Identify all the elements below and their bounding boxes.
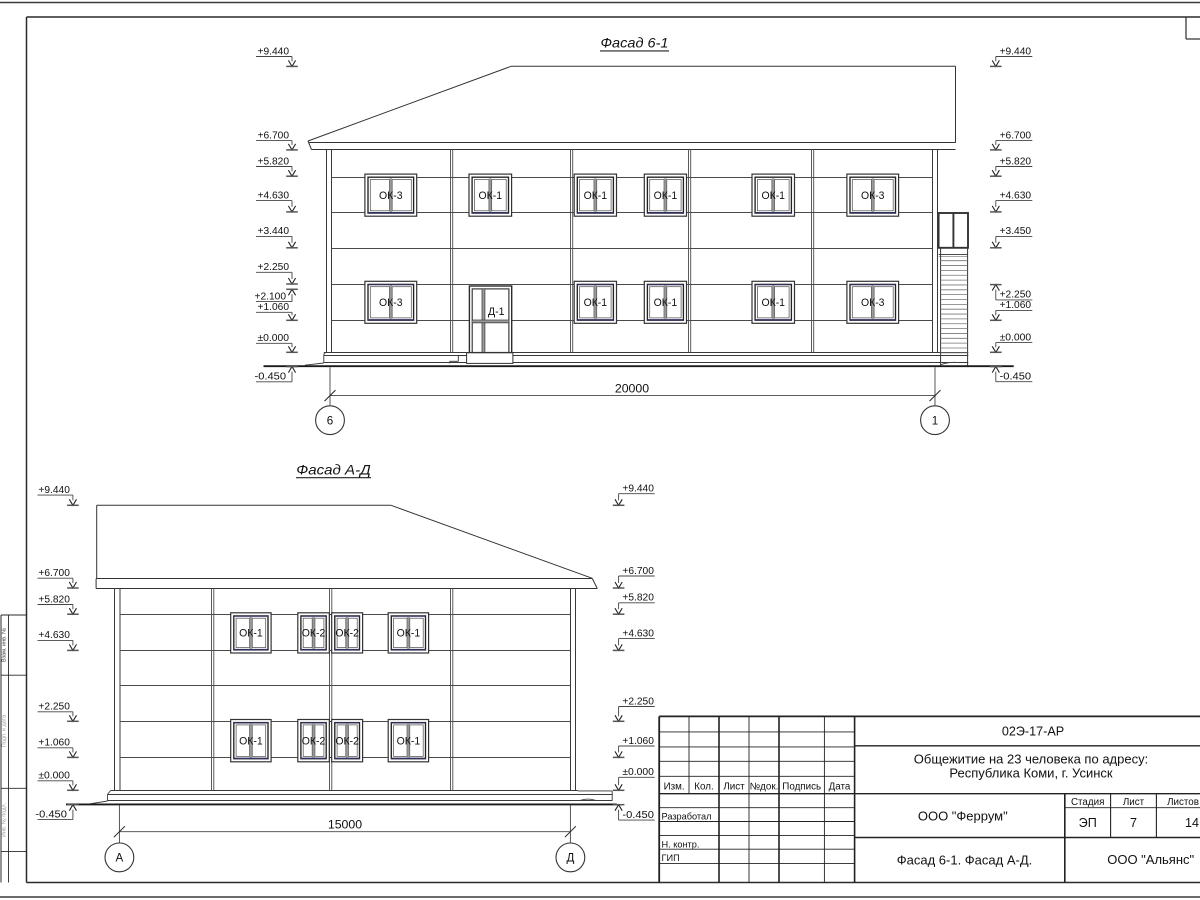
svg-text:+4.630: +4.630 [622,628,654,639]
svg-text:+2.100: +2.100 [255,291,287,302]
svg-text:Листов: Листов [1167,797,1199,808]
svg-text:ОК-1: ОК-1 [479,190,503,202]
svg-text:Инв. № подл.: Инв. № подл. [2,802,8,837]
svg-text:ОК-3: ОК-3 [861,297,885,309]
svg-text:Стадия: Стадия [1071,797,1104,808]
svg-text:+6.700: +6.700 [1000,130,1032,141]
svg-text:+2.250: +2.250 [258,262,290,273]
svg-text:-0.450: -0.450 [1000,372,1032,383]
svg-text:Лист: Лист [1123,797,1145,808]
svg-text:+6.700: +6.700 [622,566,654,577]
svg-text:+6.700: +6.700 [38,568,70,579]
svg-text:ООО "Феррум": ООО "Феррум" [918,808,1008,823]
svg-text:+1.060: +1.060 [1000,300,1032,311]
svg-text:+5.820: +5.820 [1000,156,1032,167]
svg-text:ОК-1: ОК-1 [239,628,263,640]
svg-text:14: 14 [1185,816,1199,830]
svg-text:+4.630: +4.630 [38,630,70,641]
svg-text:Подпись: Подпись [782,781,821,792]
svg-text:Республика Коми, г. Усинск: Республика Коми, г. Усинск [949,765,1112,780]
svg-text:Подп. и дата: Подп. и дата [2,714,8,747]
svg-text:±0.000: ±0.000 [1000,332,1032,343]
svg-text:Взам. инв. №: Взам. инв. № [2,628,8,662]
svg-text:ОК-3: ОК-3 [379,190,403,202]
svg-text:±0.000: ±0.000 [622,767,654,778]
svg-text:ОК-1: ОК-1 [654,297,678,309]
svg-text:+9.440: +9.440 [38,485,70,496]
svg-text:ОК-1: ОК-1 [584,297,608,309]
svg-text:ОК-1: ОК-1 [584,190,608,202]
svg-text:02Э-17-АР: 02Э-17-АР [1002,725,1064,739]
svg-text:+4.630: +4.630 [1000,190,1032,201]
svg-text:+1.060: +1.060 [258,302,290,313]
svg-text:Д: Д [566,852,574,865]
svg-text:±0.000: ±0.000 [258,333,290,344]
svg-text:+5.820: +5.820 [258,156,290,167]
svg-text:ОК-3: ОК-3 [861,190,885,202]
svg-text:-0.450: -0.450 [622,810,654,821]
svg-text:+4.630: +4.630 [258,190,290,201]
svg-text:ОК-1: ОК-1 [762,190,786,202]
svg-text:Разработал: Разработал [662,811,712,821]
svg-text:+2.250: +2.250 [38,702,70,713]
svg-text:+3.450: +3.450 [1000,226,1032,237]
svg-text:Н. контр.: Н. контр. [662,839,700,849]
svg-text:+9.440: +9.440 [1000,46,1032,57]
svg-text:Фасад 6-1: Фасад 6-1 [601,36,669,51]
svg-text:+2.250: +2.250 [622,696,654,707]
svg-text:+6.700: +6.700 [258,130,290,141]
svg-text:ОК-1: ОК-1 [397,735,421,747]
svg-text:Д-1: Д-1 [488,306,505,318]
svg-text:ГИП: ГИП [662,853,680,863]
svg-text:+1.060: +1.060 [38,738,70,749]
svg-text:Фасад А-Д: Фасад А-Д [296,462,371,477]
svg-text:+9.440: +9.440 [622,484,654,495]
svg-text:ОК-2: ОК-2 [302,735,326,747]
svg-text:1: 1 [932,414,938,427]
svg-text:7: 7 [1130,816,1137,830]
svg-text:+5.820: +5.820 [38,594,70,605]
svg-text:ОК-2: ОК-2 [335,628,359,640]
svg-text:ЭП: ЭП [1079,816,1097,830]
svg-text:15000: 15000 [328,817,363,831]
svg-text:ОК-1: ОК-1 [397,628,421,640]
svg-text:+1.060: +1.060 [622,736,654,747]
svg-text:ОК-1: ОК-1 [239,735,263,747]
svg-text:№док.: №док. [750,781,779,792]
svg-text:Изм.: Изм. [664,781,685,792]
svg-text:ОК-2: ОК-2 [302,628,326,640]
svg-text:ОК-1: ОК-1 [654,190,678,202]
svg-text:+5.820: +5.820 [622,593,654,604]
svg-text:Дата: Дата [829,781,851,792]
svg-text:+2.250: +2.250 [1000,290,1032,301]
svg-text:+9.440: +9.440 [258,46,290,57]
svg-text:±0.000: ±0.000 [38,771,70,782]
svg-text:А: А [116,852,124,865]
svg-text:ОК-1: ОК-1 [762,297,786,309]
svg-text:-0.450: -0.450 [255,372,287,383]
svg-text:ОК-3: ОК-3 [379,297,403,309]
svg-text:Фасад 6-1. Фасад А-Д.: Фасад 6-1. Фасад А-Д. [897,853,1033,868]
svg-text:Лист: Лист [723,781,745,792]
svg-text:ООО "Альянс": ООО "Альянс" [1107,852,1194,867]
svg-text:-0.450: -0.450 [35,809,67,820]
svg-text:+3.440: +3.440 [258,226,290,237]
svg-text:20000: 20000 [615,381,650,395]
svg-text:6: 6 [327,414,333,427]
svg-text:Кол.: Кол. [694,781,713,792]
svg-text:ОК-2: ОК-2 [335,735,359,747]
